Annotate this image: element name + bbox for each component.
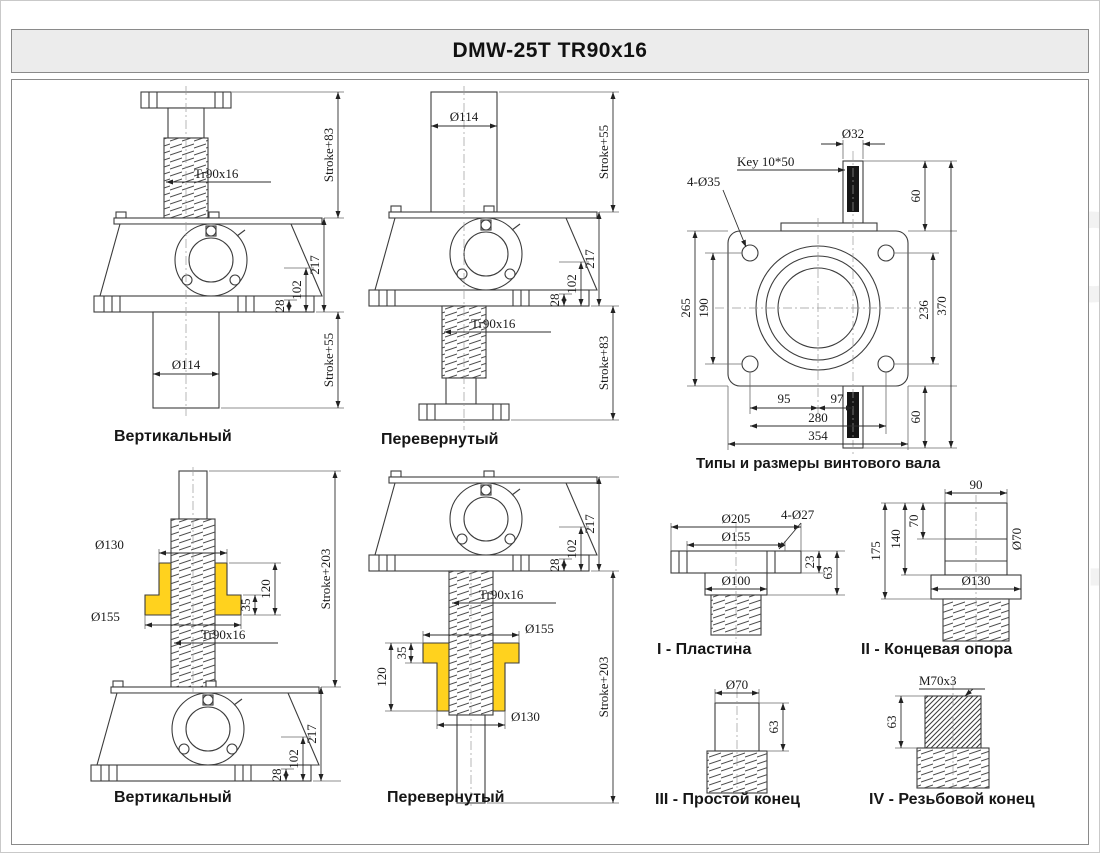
drawing-end-type-1: Ø205 Ø155 4-Ø27 Ø100 23 63	[653, 493, 853, 653]
dim-key: Key 10*50	[737, 154, 794, 169]
shaft-types-heading: Типы и размеры винтового вала	[696, 455, 940, 472]
dim-217: 217	[582, 514, 597, 534]
dim-175: 175	[868, 541, 883, 561]
dim-d155: Ø155	[91, 609, 120, 624]
dim-217: 217	[582, 249, 597, 269]
dim-d114: Ø114	[450, 109, 479, 124]
dim-stroke: Stroke+203	[318, 549, 333, 610]
dim-d130: Ø130	[511, 709, 540, 724]
dim-d205: Ø205	[722, 511, 751, 526]
dim-35: 35	[394, 647, 409, 660]
dim-holes: 4-Ø27	[781, 507, 815, 522]
dim-d32: Ø32	[842, 126, 864, 141]
dim-90: 90	[970, 477, 983, 492]
dim-102: 102	[289, 280, 304, 300]
dim-217: 217	[304, 724, 319, 744]
drawing-inverted-top: Ø114 Tr90x16 Stroke+55 217 102 28 Stroke…	[361, 86, 641, 446]
dim-d130: Ø130	[95, 537, 124, 552]
dim-screw-thread: Tr90x16	[194, 166, 239, 181]
dim-screw-thread: Tr90x16	[479, 587, 524, 602]
dim-35: 35	[238, 599, 253, 612]
drawing-inverted-bellows: Tr90x16 Ø155 35 120 Ø130 217 102 28	[361, 463, 641, 823]
jack-body	[369, 471, 597, 809]
label-type4: IV - Резьбовой конец	[869, 791, 1035, 809]
dim-102: 102	[564, 274, 579, 294]
label-vertical-bottom: Вертикальный	[114, 789, 232, 807]
dim-265: 265	[678, 298, 693, 318]
drawing-vertical-bellows: Ø130 Ø155 120 35 Tr90x16 Stroke+203 217 …	[83, 467, 353, 817]
dim-63: 63	[884, 716, 899, 729]
dim-236: 236	[916, 300, 931, 320]
dim-stroke-top: Stroke+55	[596, 125, 611, 179]
dim-120: 120	[258, 579, 273, 599]
dim-60-bottom: 60	[908, 411, 923, 424]
dim-holes: 4-Ø35	[687, 174, 720, 189]
dim-190: 190	[696, 298, 711, 318]
dim-102: 102	[564, 539, 579, 559]
plain-end	[707, 689, 767, 793]
dim-95: 95	[778, 391, 791, 406]
dim-screw-thread: Tr90x16	[471, 316, 516, 331]
dim-370: 370	[934, 296, 949, 316]
jack-body	[369, 86, 597, 430]
label-inverted-top: Перевернутый	[381, 431, 498, 449]
drawing-sheet: ТОН АСТ АСТ ТОН ТОН АСТ ТОН DMW-25T TR90…	[0, 0, 1100, 853]
dim-stroke: Stroke+203	[596, 657, 611, 718]
dim-102: 102	[286, 749, 301, 769]
dim-d114: Ø114	[172, 357, 201, 372]
drawing-end-type-4: M70x3 63	[873, 671, 1038, 791]
label-vertical-top: Вертикальный	[114, 428, 232, 446]
drawing-end-type-3: Ø70 63	[673, 681, 823, 796]
dim-screw-thread: Tr90x16	[201, 627, 246, 642]
dim-d100: Ø100	[722, 573, 751, 588]
end-support	[931, 495, 1021, 647]
label-type1: I - Пластина	[657, 641, 751, 659]
jack-body	[94, 86, 322, 416]
dim-120: 120	[374, 667, 389, 687]
dim-60-top: 60	[908, 190, 923, 203]
dim-stroke-bottom: Stroke+83	[596, 336, 611, 390]
dim-23: 23	[802, 556, 817, 569]
dim-d155: Ø155	[722, 529, 751, 544]
dim-thread: M70x3	[919, 673, 957, 688]
title-bar: DMW-25T TR90x16	[11, 29, 1089, 73]
drawing-top-view: Ø32 Key 10*50 4-Ø35 265 190 60 236 370 6…	[673, 96, 983, 406]
dim-140: 140	[888, 529, 903, 549]
dim-70: 70	[906, 515, 921, 528]
dim-97: 97	[831, 391, 845, 406]
dim-28: 28	[547, 559, 562, 572]
dim-63: 63	[820, 567, 835, 580]
dim-d130: Ø130	[962, 573, 991, 588]
dim-d70: Ø70	[1009, 528, 1024, 550]
dim-280: 280	[808, 410, 828, 425]
dim-354: 354	[808, 428, 828, 443]
dim-d70: Ø70	[726, 677, 748, 692]
label-inverted-bottom: Перевернутый	[387, 789, 504, 807]
dim-28: 28	[272, 300, 287, 313]
dim-217: 217	[307, 255, 322, 275]
threaded-end	[917, 681, 989, 789]
dim-28: 28	[269, 769, 284, 782]
dim-63: 63	[766, 721, 781, 734]
jack-body	[91, 467, 319, 781]
page-title: DMW-25T TR90x16	[453, 39, 648, 63]
dim-stroke-top: Stroke+83	[321, 128, 336, 182]
label-type3: III - Простой конец	[655, 791, 800, 809]
drawing-end-type-2: 90 70 140 175 Ø70 Ø130	[857, 481, 1072, 651]
dim-28: 28	[547, 294, 562, 307]
drawing-vertical-top: Tr90x16 Ø114 Stroke+83 217 102 28 Stroke…	[86, 86, 356, 436]
label-type2: II - Концевая опора	[861, 641, 1012, 659]
dim-d155: Ø155	[525, 621, 554, 636]
dim-stroke-bottom: Stroke+55	[321, 333, 336, 387]
